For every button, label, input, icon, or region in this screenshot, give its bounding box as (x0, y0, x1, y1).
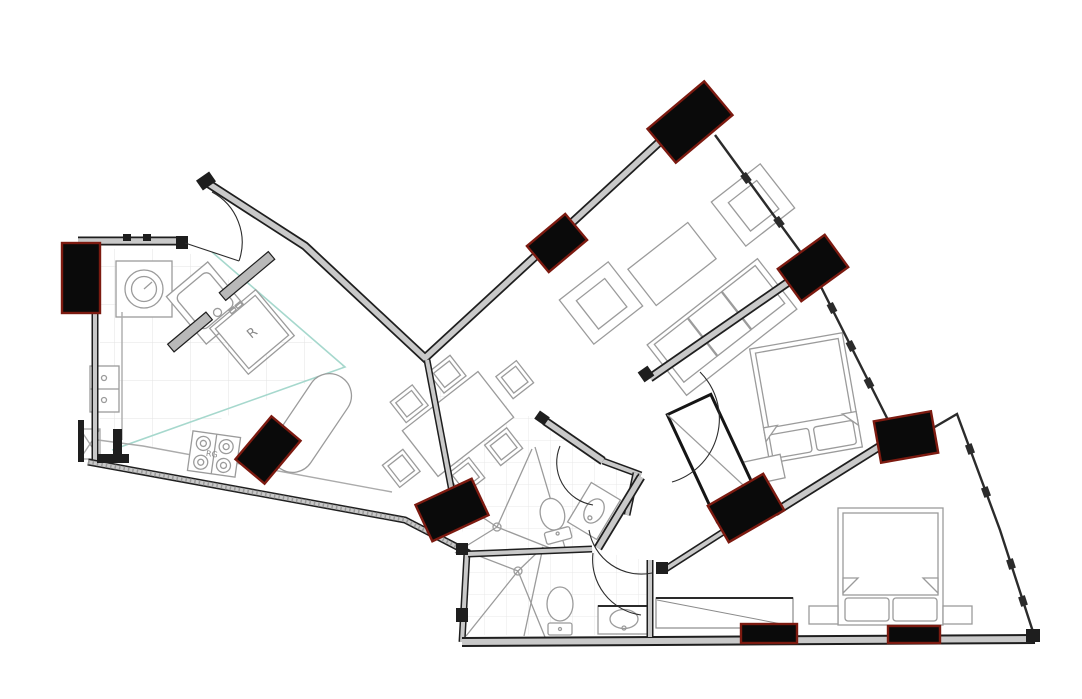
armchair-2 (559, 262, 642, 344)
range-label: RG (205, 449, 218, 460)
floor-plan-svg: RG R (0, 0, 1082, 699)
floor-plan-page: RG R (0, 0, 1082, 699)
armchair-1 (711, 164, 794, 246)
nightstand (943, 606, 972, 624)
bed-1 (750, 333, 863, 464)
bedroom-2 (656, 508, 972, 628)
column (741, 624, 797, 643)
pillow (845, 598, 889, 621)
bed-2 (838, 508, 943, 625)
range: RG (187, 431, 240, 477)
column (874, 411, 938, 462)
coffee-table (628, 222, 716, 305)
wall-southwest (88, 462, 467, 642)
sink-alcove-wall (219, 252, 274, 301)
window-wall-southeast (933, 414, 1035, 638)
nightstand (809, 606, 838, 624)
toilet-2 (547, 587, 573, 635)
column (62, 243, 100, 313)
column (648, 81, 733, 162)
pillow (893, 598, 937, 621)
washer (116, 261, 172, 317)
column (778, 235, 848, 301)
column (888, 626, 940, 643)
